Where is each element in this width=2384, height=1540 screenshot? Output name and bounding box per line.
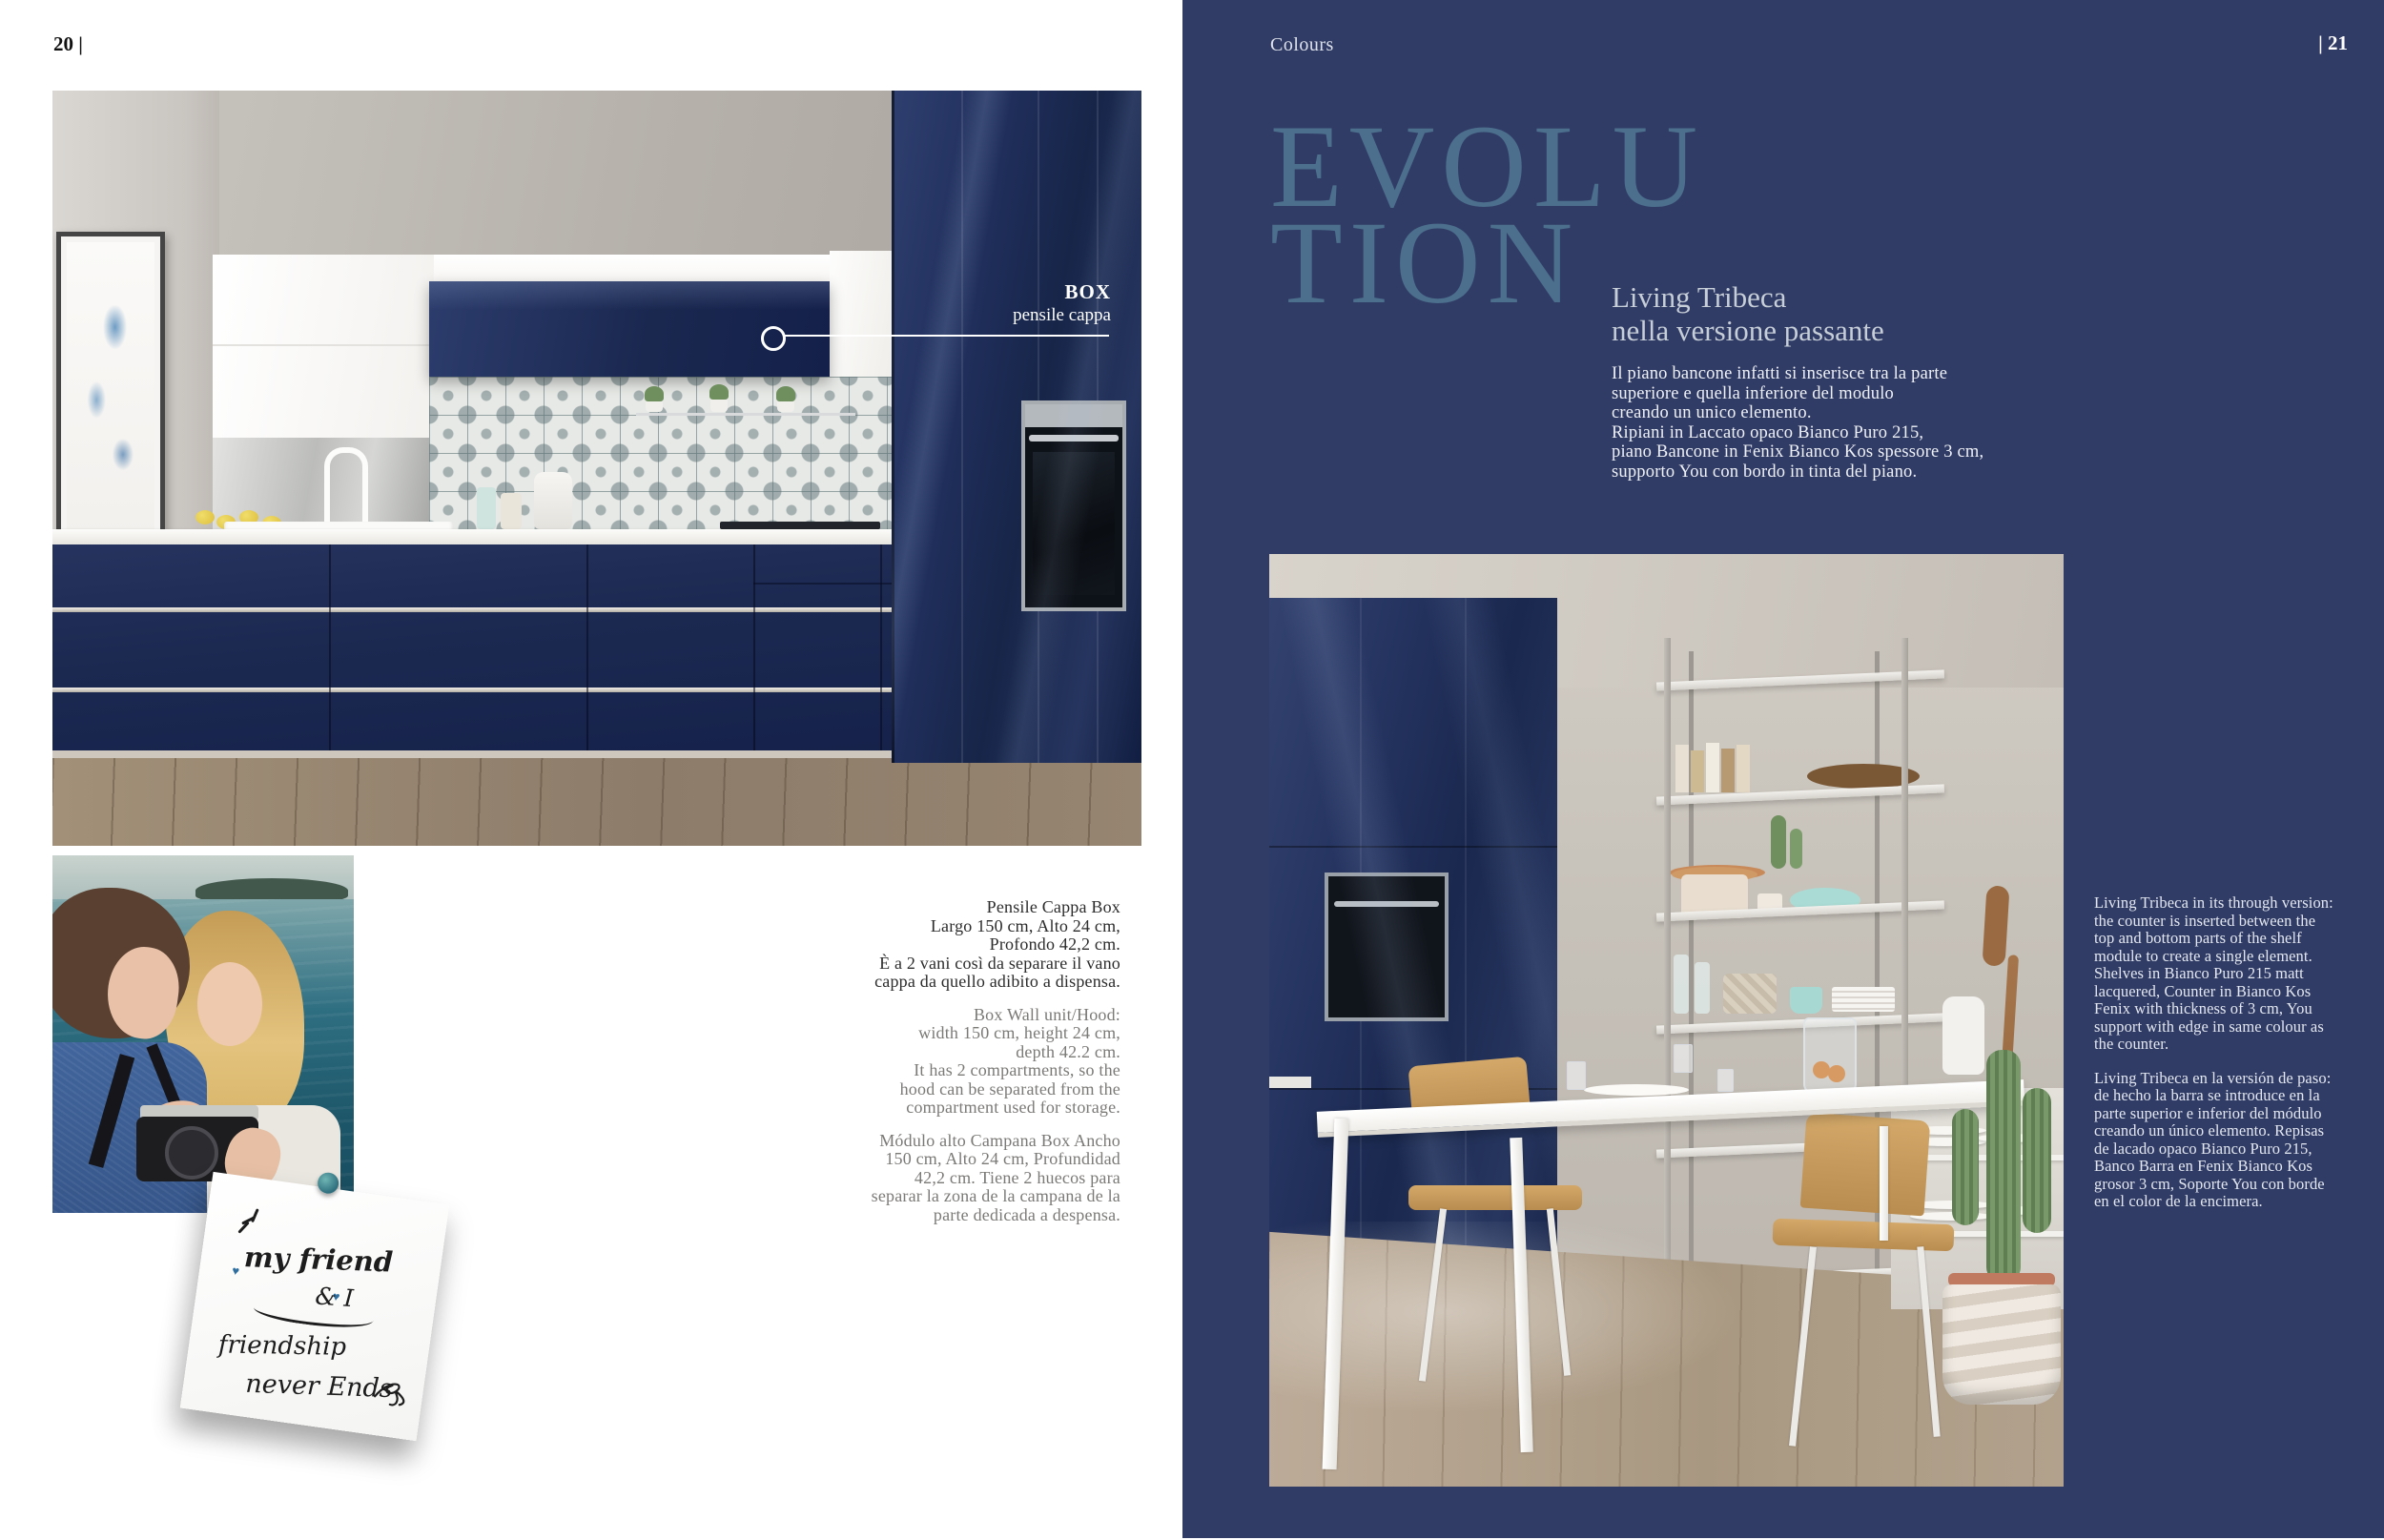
spec-line: Box Wall unit/Hood:: [744, 1006, 1120, 1025]
spec-line: separar la zona de la campana de la: [744, 1187, 1120, 1206]
hood-callout-label: BOX pensile cappa: [915, 280, 1111, 326]
blonde-woman-face: [197, 962, 262, 1046]
cactus-lobe: [1986, 1050, 2021, 1283]
canister: [477, 487, 496, 529]
callout-line: [784, 335, 1109, 337]
spec-line: Módulo alto Campana Box Ancho: [744, 1132, 1120, 1151]
spec-paragraph-en: Box Wall unit/Hood: width 150 cm, height…: [744, 1006, 1120, 1118]
plant: [776, 386, 795, 401]
book: [1737, 745, 1750, 792]
callout-subtitle: pensile cappa: [915, 305, 1111, 326]
table-leg: [1880, 1126, 1888, 1241]
intro-line: creando un unico elemento.: [1612, 403, 1983, 423]
description-en: Living Tribeca in its through version: t…: [2094, 894, 2334, 1054]
spec-paragraph-es: Módulo alto Campana Box Ancho 150 cm, Al…: [744, 1132, 1120, 1225]
description-es: Living Tribeca en la versión de paso: de…: [2094, 1070, 2334, 1211]
wood-floor: [52, 758, 1141, 846]
drinking-glass: [1567, 1061, 1586, 1090]
intro-line: superiore e quella inferiore del modulo: [1612, 384, 1983, 404]
intro-line: Il piano bancone infatti si inserisce tr…: [1612, 364, 1983, 384]
spec-line: parte dedicada a despensa.: [744, 1206, 1120, 1225]
napkin-stack: [1832, 987, 1895, 1012]
drinking-glass: [1717, 1069, 1734, 1092]
note-line-1: my friend: [243, 1241, 406, 1279]
rustic-pot: [1942, 1284, 2061, 1405]
cabinet-seam: [329, 544, 331, 750]
spec-line: It has 2 compartments, so the: [744, 1061, 1120, 1080]
cabinet-seam: [880, 544, 882, 750]
callout-marker: [761, 326, 786, 351]
article-heading: Living Tribeca nella versione passante: [1612, 280, 1884, 347]
handwritten-note: my friend ♥ ♥ & I friendship never Ends: [180, 1172, 449, 1441]
cabinet-seam: [753, 544, 755, 750]
box-hood-gloss: [429, 281, 830, 310]
oar-blade: [1982, 885, 2009, 966]
bottle: [1695, 962, 1710, 1014]
faucet: [324, 447, 368, 533]
orange: [1828, 1065, 1845, 1082]
spacer: [744, 1118, 1120, 1132]
cactus-lobe: [1952, 1109, 1979, 1225]
small-cactus: [1771, 815, 1786, 869]
bottle: [1674, 955, 1689, 1014]
handle-strip: [52, 688, 958, 692]
description-column: Living Tribeca in its through version: t…: [2094, 894, 2334, 1211]
note-line-2: & I: [315, 1282, 355, 1312]
chair-backrest: [1800, 1113, 1931, 1217]
note-line-3: friendship: [218, 1331, 347, 1362]
chair-seat: [1408, 1185, 1582, 1210]
spec-paragraph-it: Pensile Cappa Box Largo 150 cm, Alto 24 …: [744, 898, 1120, 992]
upper-cabinet-left: [213, 255, 434, 438]
book: [1721, 749, 1735, 792]
handle-strip: [52, 607, 958, 612]
book: [1675, 745, 1689, 792]
page-number-left: 20 |: [53, 32, 83, 56]
botanical-print-1: [67, 242, 154, 545]
spec-line: 150 cm, Alto 24 cm, Profundidad: [744, 1150, 1120, 1169]
kitchen-photo: [52, 91, 1141, 846]
plant-pot: [710, 398, 728, 412]
cabinet-seam: [213, 344, 434, 346]
countertop: [52, 529, 958, 544]
spec-line: width 150 cm, height 24 cm,: [744, 1024, 1120, 1043]
cabinet-gloss: [892, 91, 1141, 763]
spec-line: cappa da quello adibito a dispensa.: [744, 973, 1120, 992]
spec-line: Profondo 42,2 cm.: [744, 935, 1120, 955]
spec-line: compartment used for storage.: [744, 1099, 1120, 1118]
cactus: [1952, 1050, 2051, 1283]
canister: [501, 493, 522, 529]
friends-photo: [52, 855, 354, 1213]
lemon: [195, 510, 215, 524]
spec-line: hood can be separated from the: [744, 1080, 1120, 1099]
spec-line: depth 42.2 cm.: [744, 1043, 1120, 1062]
spec-line: Largo 150 cm, Alto 24 cm,: [744, 917, 1120, 936]
cactus-lobe: [2023, 1088, 2051, 1233]
glass-jar: [1803, 1017, 1857, 1094]
aqua-cup: [1790, 987, 1822, 1014]
spec-line: 42,2 cm. Tiene 2 huecos para: [744, 1169, 1120, 1188]
callout-title: BOX: [915, 280, 1111, 304]
orange: [1813, 1061, 1830, 1078]
intro-paragraph-it: Il piano bancone infatti si inserisce tr…: [1612, 364, 1983, 482]
plant: [645, 386, 664, 401]
spacer: [744, 992, 1120, 1006]
section-header: Colours: [1270, 34, 1334, 56]
small-cactus: [1790, 829, 1802, 869]
intro-line: piano Bancone in Fenix Bianco Kos spesso…: [1612, 442, 1983, 462]
cabinet-seam: [586, 544, 588, 750]
left-page: 20 |: [0, 0, 1182, 1540]
right-page: Colours | 21 EVOLU TION Living Tribeca n…: [1182, 0, 2384, 1538]
interior-photo: [1269, 554, 2064, 1487]
heading-line-1: Living Tribeca: [1612, 280, 1884, 314]
base-cabinets: [52, 544, 958, 750]
flourish-icon: [371, 1375, 410, 1408]
page-number-right: | 21: [2318, 31, 2348, 55]
drinking-glass: [1674, 1044, 1693, 1073]
book: [1706, 743, 1719, 792]
camera-lens: [165, 1126, 218, 1180]
open-shelf: [636, 413, 855, 416]
cooktop: [720, 522, 880, 529]
plant: [709, 384, 729, 400]
spec-text-block: Pensile Cappa Box Largo 150 cm, Alto 24 …: [744, 898, 1120, 1224]
wall-art-frame-1: [56, 232, 165, 556]
kettle: [534, 472, 572, 529]
intro-line: supporto You con bordo in tinta del pian…: [1612, 462, 1983, 483]
spec-line: Pensile Cappa Box: [744, 898, 1120, 917]
book: [1691, 750, 1704, 792]
basket: [1723, 974, 1777, 1014]
spec-line: È a 2 vani così da separare il vano: [744, 955, 1120, 974]
heading-line-2: nella versione passante: [1612, 314, 1884, 347]
dish: [1584, 1084, 1689, 1096]
intro-line: Ripiani in Laccato opaco Bianco Puro 215…: [1612, 423, 1983, 443]
